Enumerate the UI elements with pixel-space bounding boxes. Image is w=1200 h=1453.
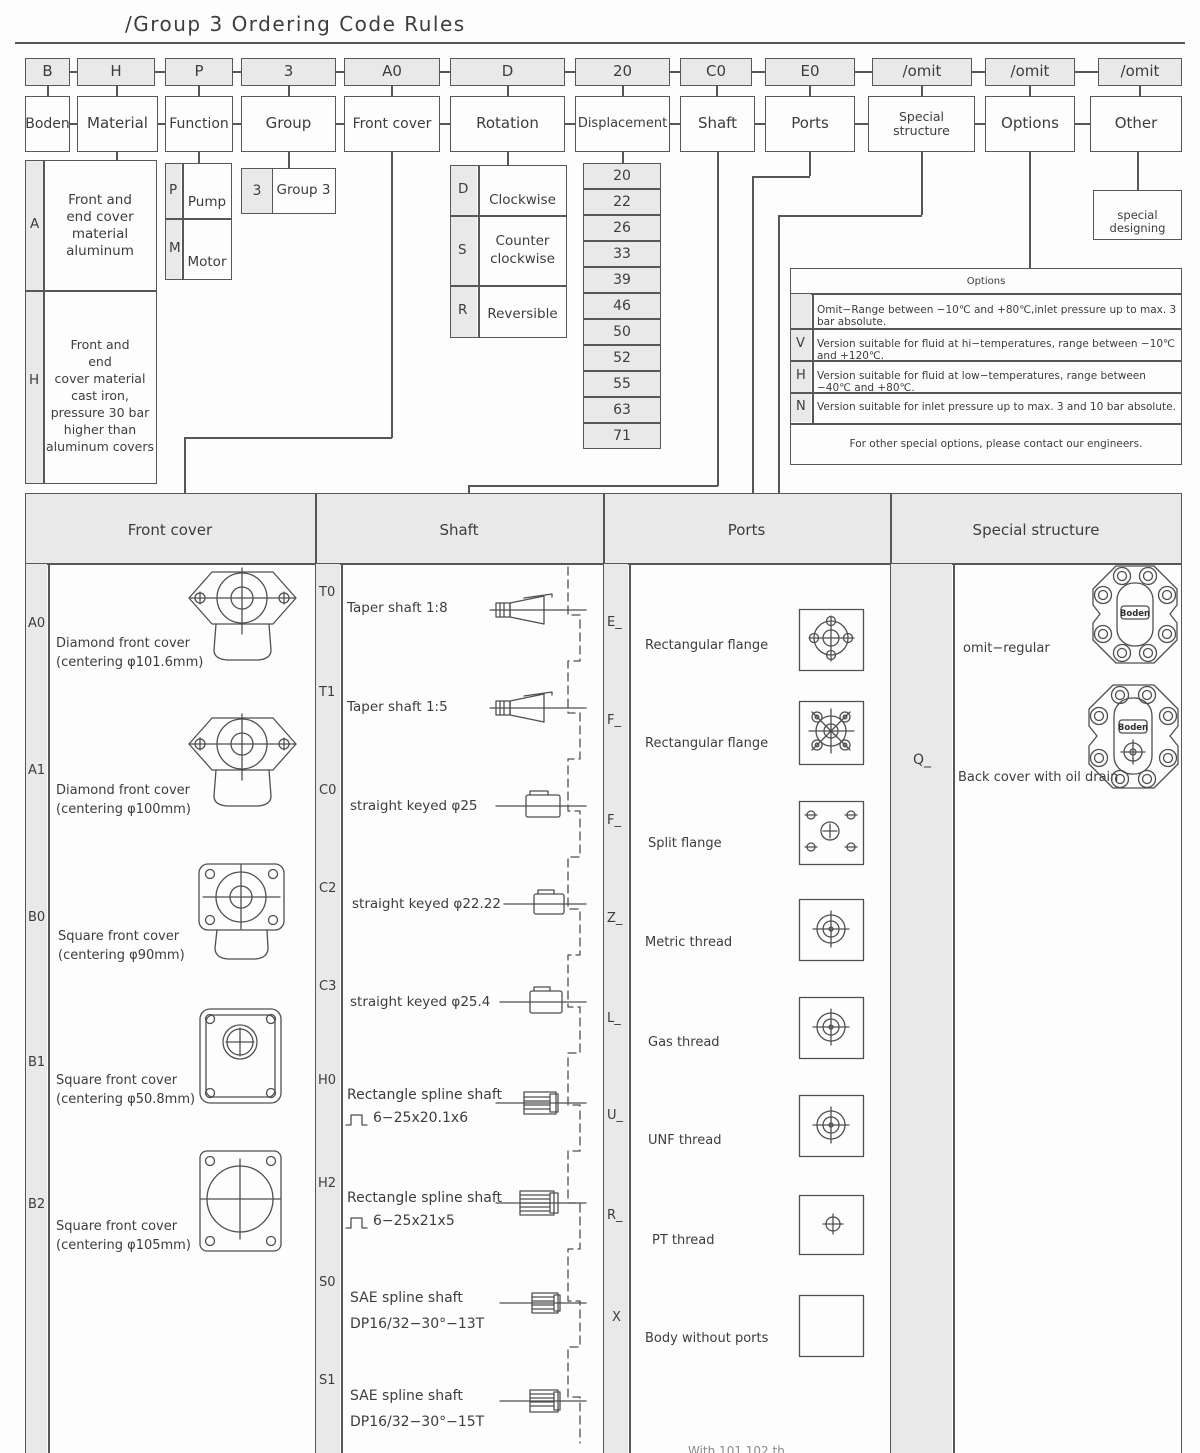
body-without-ports-drawing (798, 1294, 866, 1360)
rotation-code-d: D (458, 181, 468, 197)
spline-profile-icon (345, 1112, 369, 1127)
code-box-options: /omit (985, 58, 1075, 86)
cropped-bottom-note: With 101 102 th (688, 1444, 785, 1453)
connector (70, 123, 77, 125)
spline-profile-icon (345, 1215, 369, 1230)
port-desc: Rectangular flange (645, 736, 768, 751)
code-value: E0 (800, 63, 819, 80)
port-code: R_ (607, 1208, 623, 1223)
connector (391, 86, 393, 96)
displacement-cell: 71 (583, 423, 661, 449)
function-divider (165, 218, 232, 220)
shaft-desc: Taper shaft 1:8 (347, 600, 448, 616)
connector (755, 123, 765, 125)
detail-header-special: Special structure (890, 521, 1182, 539)
connector (921, 86, 923, 96)
label-special-structure: Special structure (868, 96, 975, 152)
shaft-desc: straight keyed φ25.4 (350, 994, 490, 1010)
strip-divider (48, 563, 50, 1453)
shaft-desc: SAE spline shaft (350, 1290, 463, 1306)
connector (565, 71, 575, 73)
port-code: F_ (607, 713, 621, 728)
displacement-value: 33 (613, 246, 631, 262)
strip-divider (953, 563, 955, 1453)
displacement-value: 52 (613, 350, 631, 366)
connector-special (778, 215, 922, 217)
label-ports: Ports (765, 96, 855, 152)
shaft-code: S1 (319, 1373, 336, 1388)
shaft-desc: Rectangle spline shaft (347, 1190, 502, 1206)
rotation-divider (450, 215, 567, 217)
title-rule (15, 42, 1185, 44)
connector (1137, 152, 1139, 190)
displacement-cell: 39 (583, 267, 661, 293)
label-shaft: Shaft (680, 96, 755, 152)
page-title: /Group 3 Ordering Code Rules (125, 12, 466, 36)
label-text: Group (266, 115, 312, 132)
code-value: P (194, 63, 203, 80)
connector (288, 86, 290, 96)
code-box-material: H (77, 58, 155, 86)
shaft-code: S0 (319, 1275, 336, 1290)
special-designing-box: special designing (1093, 190, 1182, 240)
connector (565, 123, 575, 125)
connector-ports (752, 176, 810, 178)
shaft-code: H2 (318, 1176, 336, 1191)
port-desc: UNF thread (648, 1133, 721, 1148)
connector (47, 86, 49, 96)
label-text: Special structure (869, 110, 974, 139)
connector (670, 71, 680, 73)
connector-shaft (468, 485, 718, 487)
shaft-desc: SAE spline shaft (350, 1388, 463, 1404)
options-table (790, 268, 1182, 465)
pump-back-oil-drain-drawing: Boden (1086, 682, 1181, 794)
code-value: C0 (706, 63, 726, 80)
displacement-value: 46 (613, 298, 631, 314)
connector (855, 123, 868, 125)
function-desc-motor: Motor (184, 254, 230, 270)
connector (1029, 152, 1031, 268)
special-code-strip (891, 564, 952, 1453)
connector (440, 123, 450, 125)
shaft-desc2: 6−25x20.1x6 (373, 1110, 468, 1126)
square-front-cover-drawing-large-bore (193, 1147, 288, 1255)
shaft-code: T0 (319, 585, 335, 600)
front-cover-code: B2 (28, 1197, 45, 1212)
strip-divider (341, 563, 343, 1453)
diamond-front-cover-drawing (185, 565, 300, 675)
diamond-front-cover-drawing (185, 711, 300, 821)
displacement-value: 50 (613, 324, 631, 340)
port-desc: Rectangular flange (645, 638, 768, 653)
material-code-a: A (30, 216, 39, 232)
ordering-code-diagram: /Group 3 Ordering Code Rules B H P 3 A0 … (0, 0, 1200, 1453)
rotation-desc-s: Counter clockwise (480, 232, 565, 268)
material-divider (25, 290, 157, 292)
rotation-desc-r: Reversible (480, 306, 565, 322)
square-front-cover-drawing-small-bore (192, 1004, 289, 1108)
connector-special (921, 152, 923, 215)
connector (198, 86, 200, 96)
port-code: F_ (607, 813, 621, 828)
connector (507, 152, 509, 165)
label-text: Front cover (353, 116, 432, 132)
options-row-n: Version suitable for inlet pressure up t… (817, 401, 1179, 413)
label-text: Displacement (578, 117, 667, 132)
connector (198, 152, 200, 163)
detail-header-ports: Ports (603, 521, 890, 539)
code-box-ports: E0 (765, 58, 855, 86)
code-box-rotation: D (450, 58, 565, 86)
material-code-h: H (29, 372, 39, 388)
connector (440, 71, 450, 73)
detail-header-front-cover: Front cover (25, 521, 315, 539)
connector (809, 86, 811, 96)
material-desc-h: Front and end cover material cast iron, … (44, 336, 156, 455)
code-value: H (110, 63, 121, 80)
shaft-code: C2 (319, 881, 336, 896)
displacement-cell: 33 (583, 241, 661, 267)
label-text: Other (1115, 115, 1158, 132)
function-code-p: P (169, 182, 177, 198)
connector (1139, 86, 1141, 96)
label-text: Material (87, 115, 148, 132)
options-divider (790, 293, 1182, 295)
code-value: 3 (284, 63, 294, 80)
options-row-h: Version suitable for fluid at low−temper… (817, 370, 1179, 394)
connector (233, 123, 241, 125)
shaft-desc: straight keyed φ22.22 (352, 896, 501, 912)
material-desc-a: Front and end cover material aluminum (45, 192, 155, 260)
displacement-cell: 55 (583, 371, 661, 397)
connector (670, 123, 680, 125)
port-desc: Metric thread (645, 935, 732, 950)
code-box-special: /omit (872, 58, 972, 86)
label-options: Options (985, 96, 1075, 152)
options-row-omit: Omit−Range between −10℃ and +80℃,inlet p… (817, 304, 1179, 328)
code-value: D (502, 63, 514, 80)
detail-header-shaft: Shaft (315, 521, 603, 539)
shaft-code: C3 (319, 979, 336, 994)
port-desc: PT thread (652, 1233, 715, 1248)
front-cover-code: B0 (28, 910, 45, 925)
group-desc-cell: Group 3 (272, 168, 336, 214)
options-header: Options (790, 276, 1182, 287)
connector (975, 123, 985, 125)
options-row-v: Version suitable for fluid at hi−tempera… (817, 338, 1179, 362)
displacement-cell: 52 (583, 345, 661, 371)
code-value: /omit (1011, 63, 1050, 80)
options-code-h: H (796, 368, 806, 383)
label-boden: Boden (25, 96, 70, 152)
rotation-desc-d: Clockwise (480, 192, 565, 208)
connector (336, 123, 344, 125)
rotation-divider (450, 285, 567, 287)
options-divider (790, 328, 1182, 330)
code-box-other: /omit (1098, 58, 1182, 86)
displacement-value: 22 (613, 194, 631, 210)
connector (1075, 123, 1090, 125)
code-value: /omit (903, 63, 942, 80)
front-cover-code: B1 (28, 1055, 45, 1070)
shaft-desc2: 6−25x21x5 (373, 1213, 455, 1229)
shaft-desc2: DP16/32−30°−13T (350, 1316, 484, 1332)
code-value: B (42, 63, 52, 80)
group-code: 3 (253, 183, 262, 199)
shaft-desc2: DP16/32−30°−15T (350, 1414, 484, 1430)
boden-logo: Boden (1120, 609, 1150, 619)
connector (622, 152, 624, 163)
connector (716, 86, 718, 96)
code-box-displacement: 20 (575, 58, 670, 86)
label-rotation: Rotation (450, 96, 565, 152)
displacement-value: 20 (613, 168, 631, 184)
label-text: Shaft (698, 115, 737, 132)
connector-front-cover (184, 437, 186, 493)
displacement-cell: 20 (583, 163, 661, 189)
connector-front-cover (391, 152, 393, 438)
code-value: 20 (613, 63, 632, 80)
group-code-cell: 3 (241, 168, 273, 214)
pump-back-regular-drawing: Boden (1090, 563, 1180, 669)
options-code-n: N (796, 399, 806, 414)
connector-ports (809, 152, 811, 176)
connector (1075, 71, 1098, 73)
connector-shaft (717, 152, 719, 486)
connector (233, 71, 241, 73)
code-box-shaft: C0 (680, 58, 752, 86)
port-desc: Split flange (648, 836, 722, 851)
material-code-column (26, 161, 43, 483)
port-desc: Gas thread (648, 1035, 720, 1050)
displacement-cell: 50 (583, 319, 661, 345)
shaft-desc: straight keyed φ25 (350, 798, 478, 814)
shaft-code: T1 (319, 685, 335, 700)
special-desc-omit: omit−regular (963, 641, 1050, 656)
label-text: Rotation (476, 115, 539, 132)
thread-port-drawing (798, 1094, 866, 1160)
displacement-cell: 63 (583, 397, 661, 423)
boden-logo: Boden (1118, 723, 1148, 733)
code-value: A0 (382, 63, 402, 80)
rectangular-flange-drawing (798, 608, 866, 674)
shaft-desc: Rectangle spline shaft (347, 1087, 502, 1103)
rotation-code-r: R (458, 302, 467, 318)
port-code: Z_ (607, 911, 622, 926)
special-code-q: Q_ (913, 752, 931, 768)
options-code-v: V (796, 336, 805, 351)
connector (336, 71, 344, 73)
connector (155, 71, 165, 73)
connector (158, 123, 165, 125)
square-front-cover-drawing (188, 857, 295, 965)
connector (116, 152, 118, 160)
connector (752, 71, 765, 73)
code-box-boden: B (25, 58, 70, 86)
connector (507, 86, 509, 96)
shaft-code: H0 (318, 1073, 336, 1088)
port-desc: Body without ports (645, 1331, 768, 1346)
label-function: Function (165, 96, 233, 152)
displacement-cell: 26 (583, 215, 661, 241)
front-cover-code: A1 (28, 763, 45, 778)
options-divider (812, 293, 814, 423)
thread-port-drawing (798, 996, 866, 1062)
connector (70, 71, 77, 73)
rotation-code-s: S (458, 242, 467, 258)
connector-special (778, 215, 780, 493)
function-desc-pump: Pump (184, 194, 230, 210)
label-text: Boden (25, 116, 70, 132)
split-flange-drawing (798, 800, 866, 868)
connector (972, 71, 985, 73)
code-box-function: P (165, 58, 233, 86)
displacement-value: 71 (613, 428, 631, 444)
function-code-m: M (169, 240, 181, 256)
label-other: Other (1090, 96, 1182, 152)
label-front-cover: Front cover (344, 96, 440, 152)
connector (855, 71, 872, 73)
port-code: L_ (607, 1011, 621, 1026)
rectangular-flange-diagonal-drawing (798, 700, 866, 768)
displacement-cell: 46 (583, 293, 661, 319)
code-value: /omit (1121, 63, 1160, 80)
options-footer: For other special options, please contac… (818, 438, 1174, 450)
label-material: Material (77, 96, 158, 152)
displacement-value: 26 (613, 220, 631, 236)
displacement-value: 39 (613, 272, 631, 288)
front-cover-code: A0 (28, 616, 45, 631)
connector (1029, 86, 1031, 96)
connector (622, 86, 624, 96)
connector (288, 152, 290, 168)
connector-ports (752, 176, 754, 493)
connector (116, 86, 118, 96)
pump-body-outline (550, 563, 590, 1453)
shaft-code: C0 (319, 783, 336, 798)
code-box-group: 3 (241, 58, 336, 86)
special-designing-text: special designing (1094, 209, 1181, 235)
label-group: Group (241, 96, 336, 152)
front-cover-code-strip (26, 564, 47, 1453)
port-code: U_ (607, 1108, 623, 1123)
label-displacement: Displacement (575, 96, 670, 152)
connector-front-cover (184, 437, 392, 439)
port-code: E_ (607, 615, 622, 630)
options-divider (790, 423, 1182, 425)
connector-shaft (468, 485, 470, 493)
shaft-desc: Taper shaft 1:5 (347, 699, 448, 715)
group-desc: Group 3 (277, 183, 331, 199)
thread-port-drawing (798, 898, 866, 964)
pt-thread-port-drawing (798, 1194, 866, 1258)
code-box-front-cover: A0 (344, 58, 440, 86)
label-text: Ports (791, 115, 829, 132)
label-text: Function (169, 116, 229, 132)
label-text: Options (1001, 115, 1059, 132)
displacement-value: 55 (613, 376, 631, 392)
displacement-value: 63 (613, 402, 631, 418)
displacement-cell: 22 (583, 189, 661, 215)
port-code: X (612, 1310, 621, 1325)
strip-divider (629, 563, 631, 1453)
